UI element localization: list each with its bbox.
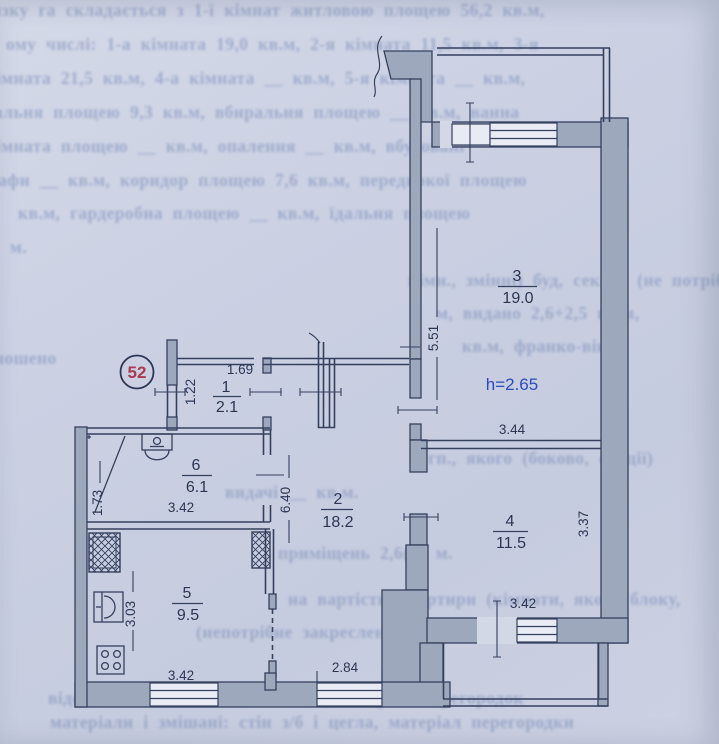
dimension-ticks <box>100 103 501 683</box>
kitchen-window <box>150 683 218 706</box>
wall-break-squiggle <box>374 36 382 97</box>
room-3-area: 19.0 <box>502 290 533 307</box>
room-1-area: 2.1 <box>216 399 238 416</box>
stove-icon <box>97 646 124 674</box>
dim-1-73: 1.73 <box>90 490 105 516</box>
room-1-number: 1 <box>222 379 231 396</box>
fixtures-layer <box>87 434 270 674</box>
room-labels: 1 2.1 2 18.2 3 19.0 4 11.5 5 9.5 6 6.1 h… <box>172 268 538 624</box>
room-6-number: 6 <box>192 457 201 474</box>
dim-5-51: 5.51 <box>426 325 441 351</box>
left-exterior-wall <box>75 427 87 707</box>
right-exterior-wall <box>601 118 628 643</box>
dim-3-42-kitchen: 3.42 <box>168 668 194 683</box>
balcony-connector-wall <box>420 643 443 684</box>
room-4-area: 11.5 <box>496 535 526 552</box>
room-5-number: 5 <box>183 585 192 602</box>
wall-pier <box>406 545 428 590</box>
dim-6-40: 6.40 <box>278 487 293 513</box>
dim-1-22: 1.22 <box>183 379 198 405</box>
floor-plan-svg: 1 2.1 2 18.2 3 19.0 4 11.5 5 9.5 6 6.1 h… <box>0 0 719 744</box>
room-5-area: 9.5 <box>177 607 199 624</box>
balcony-door-top <box>452 124 490 145</box>
room-2-number: 2 <box>334 491 343 508</box>
toilet-icon <box>142 434 172 460</box>
dim-1-69: 1.69 <box>227 362 253 377</box>
apartment-number: 52 <box>128 363 147 382</box>
sink-icon <box>94 592 123 622</box>
dim-3-03: 3.03 <box>123 601 138 627</box>
dim-2-84: 2.84 <box>332 660 359 675</box>
room3-window <box>490 123 557 146</box>
room-3-number: 3 <box>513 268 522 285</box>
dim-3-42-bathroom: 3.42 <box>168 500 194 515</box>
room-4-number: 4 <box>506 513 515 530</box>
top-balcony-rail <box>437 48 610 122</box>
windows-layer <box>150 121 557 706</box>
entry-wall <box>384 51 432 122</box>
room4-window <box>517 619 557 642</box>
apartment-number-badge: 52 <box>121 356 154 389</box>
dim-3-42-room4: 3.42 <box>510 596 536 611</box>
room2-window <box>317 683 382 706</box>
ceiling-height-label: h=2.65 <box>486 375 538 394</box>
bottom-balcony-rail <box>443 643 608 706</box>
room-6-area: 6.1 <box>186 479 208 496</box>
dim-3-44: 3.44 <box>499 422 526 437</box>
dim-3-37: 3.37 <box>576 511 591 537</box>
bottom-exterior-wall <box>75 682 450 707</box>
corridor-wall <box>410 79 421 359</box>
vent-shaft-icon <box>89 532 270 572</box>
room1-left-stub <box>167 340 177 385</box>
room-2-area: 18.2 <box>322 514 353 531</box>
